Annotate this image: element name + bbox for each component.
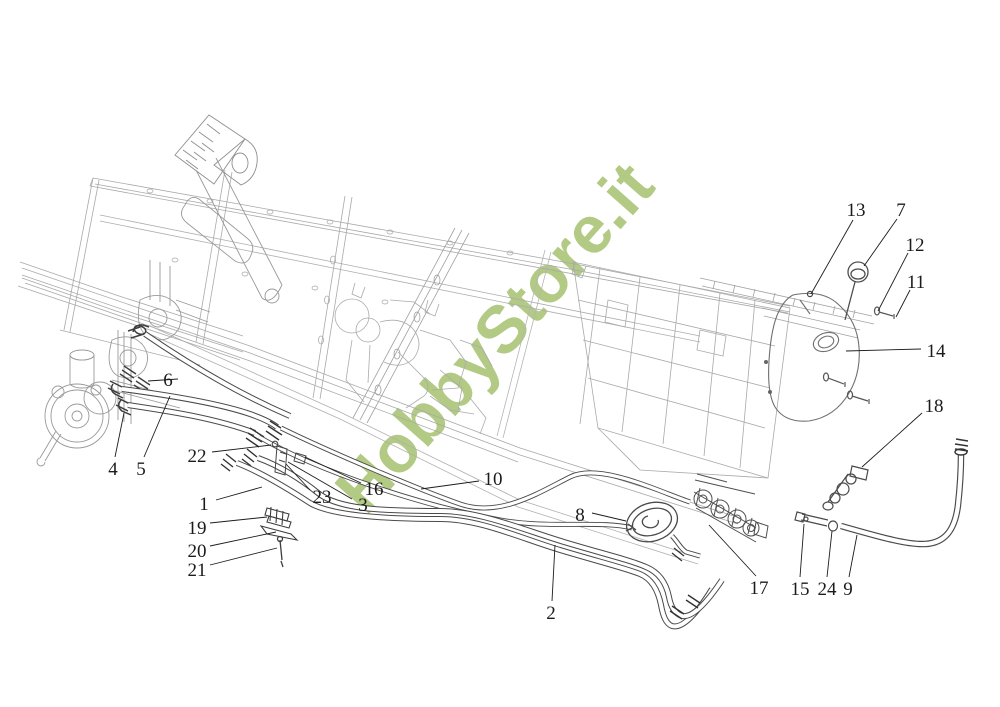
svg-text:16: 16 <box>365 479 384 500</box>
svg-text:15: 15 <box>791 579 810 600</box>
svg-text:5: 5 <box>136 459 146 480</box>
svg-text:22: 22 <box>188 446 207 467</box>
svg-text:17: 17 <box>750 578 769 599</box>
svg-text:2: 2 <box>546 603 556 624</box>
svg-text:9: 9 <box>843 579 853 600</box>
svg-text:8: 8 <box>575 505 585 526</box>
svg-text:7: 7 <box>896 200 906 221</box>
svg-text:13: 13 <box>847 200 866 221</box>
svg-text:20: 20 <box>188 541 207 562</box>
svg-text:21: 21 <box>188 560 207 581</box>
svg-text:10: 10 <box>484 469 503 490</box>
svg-text:12: 12 <box>906 235 925 256</box>
svg-text:19: 19 <box>188 518 207 539</box>
svg-text:14: 14 <box>927 341 947 362</box>
svg-text:23: 23 <box>313 487 332 508</box>
svg-text:6: 6 <box>163 370 173 391</box>
svg-text:4: 4 <box>108 459 118 480</box>
svg-text:1: 1 <box>199 494 209 515</box>
svg-text:11: 11 <box>907 272 925 293</box>
svg-text:18: 18 <box>925 396 944 417</box>
svg-text:24: 24 <box>818 579 838 600</box>
